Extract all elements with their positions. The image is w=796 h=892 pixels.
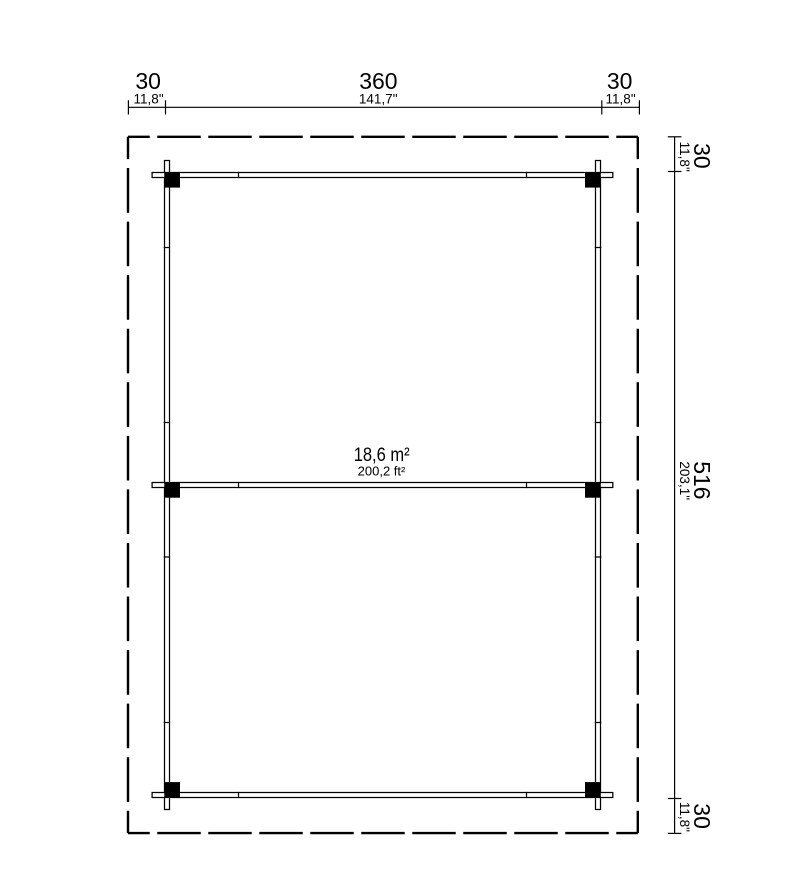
svg-text:11,8": 11,8" bbox=[677, 802, 692, 832]
svg-text:141,7": 141,7" bbox=[359, 92, 398, 107]
svg-text:30: 30 bbox=[607, 68, 633, 94]
svg-text:203,1": 203,1" bbox=[677, 461, 692, 500]
svg-text:200,2 ft²: 200,2 ft² bbox=[358, 464, 406, 479]
svg-text:11,8": 11,8" bbox=[606, 92, 636, 107]
svg-text:30: 30 bbox=[135, 68, 161, 94]
svg-text:360: 360 bbox=[359, 68, 397, 94]
svg-text:11,8": 11,8" bbox=[677, 142, 692, 172]
svg-text:11,8": 11,8" bbox=[134, 92, 164, 107]
